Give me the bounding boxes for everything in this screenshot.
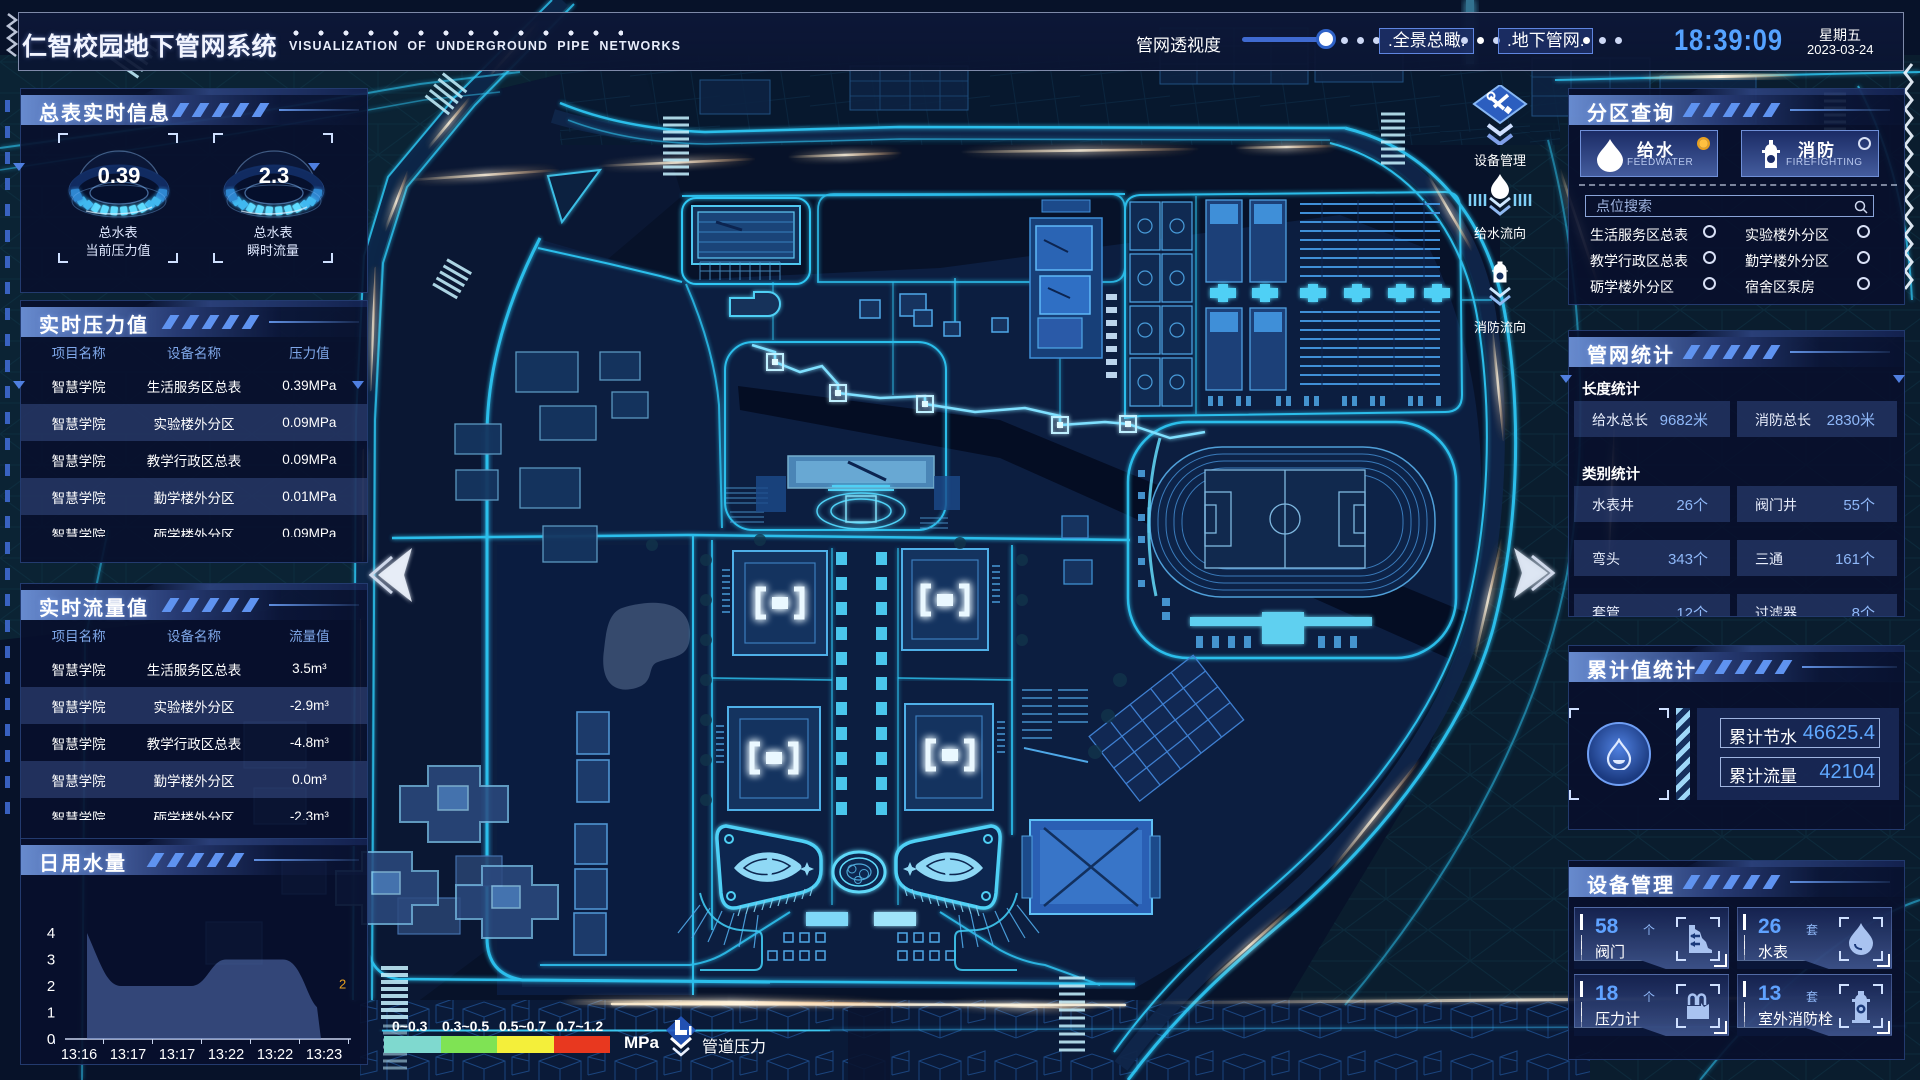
svg-text:1: 1 [47, 1005, 55, 1022]
svg-text:13:17: 13:17 [110, 1047, 146, 1062]
svg-text:13:17: 13:17 [159, 1047, 195, 1062]
svg-text:4: 4 [47, 925, 55, 942]
svg-text:13:23: 13:23 [306, 1047, 342, 1062]
svg-text:2: 2 [47, 978, 55, 995]
svg-text:2: 2 [339, 977, 346, 992]
svg-text:13:16: 13:16 [61, 1047, 97, 1062]
svg-text:13:22: 13:22 [257, 1047, 293, 1062]
svg-text:0: 0 [47, 1031, 55, 1048]
svg-text:3: 3 [47, 952, 55, 969]
svg-text:13:22: 13:22 [208, 1047, 244, 1062]
